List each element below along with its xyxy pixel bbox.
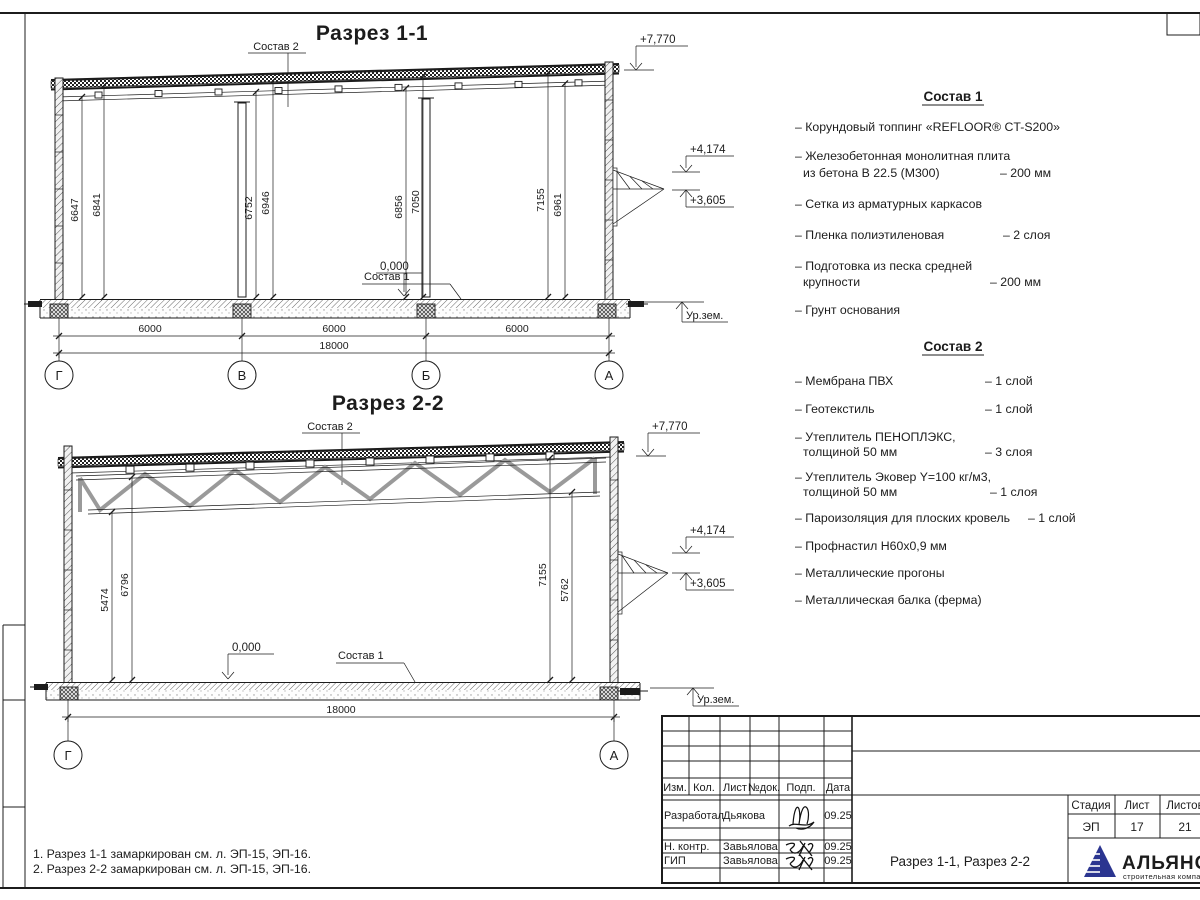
vertical-dims-s2: 5474 6796 7155 5762 xyxy=(99,455,575,683)
svg-text:– 200 мм: – 200 мм xyxy=(1000,166,1051,180)
wall-joints-s1 xyxy=(55,100,613,263)
note-2: 2. Разрез 2-2 замаркирован см. л. ЭП-15,… xyxy=(33,862,311,876)
svg-text:7155: 7155 xyxy=(535,188,547,212)
svg-text:+3,605: +3,605 xyxy=(690,578,726,590)
tb-date-ncontrol: 09.25 xyxy=(824,841,852,853)
section-1-sostav1-label: Состав 1 xyxy=(364,271,410,283)
svg-text:– Металлическая балка (ферма): – Металлическая балка (ферма) xyxy=(795,593,982,607)
wall-joints-s2 xyxy=(64,480,618,650)
svg-text:6961: 6961 xyxy=(552,193,564,217)
drawing-sheet: Разрез 1-1 Состав 2 +7,770 xyxy=(0,0,1200,900)
elevation-zero-s2: 0,000 xyxy=(222,642,274,679)
tb-header-list: Лист xyxy=(723,782,747,794)
composition-2-list: Состав 2 – Мембрана ПВХ – 1 слой – Геоте… xyxy=(795,339,1076,607)
svg-text:– Сетка из арматурных каркасов: – Сетка из арматурных каркасов xyxy=(795,197,982,211)
dim-chain-s1: 6000 6000 6000 18000 xyxy=(53,318,615,358)
ground-level-s1: Ур.зем. xyxy=(640,302,728,322)
elevation-mark-7770-s2: +7,770 xyxy=(636,421,700,456)
svg-text:– Профнастил Н60х0,9 мм: – Профнастил Н60х0,9 мм xyxy=(795,539,947,553)
axis-g-s2: Г xyxy=(64,748,71,763)
tb-stage-label: Стадия xyxy=(1071,800,1110,812)
svg-text:18000: 18000 xyxy=(319,340,348,352)
svg-text:– Металлические прогоны: – Металлические прогоны xyxy=(795,566,945,580)
tb-role-gip: ГИП xyxy=(664,855,686,867)
logo-subtitle: строительная компания xyxy=(1123,872,1200,881)
section-1-1: Разрез 1-1 Состав 2 +7,770 xyxy=(24,22,734,389)
axis-b-s1: Б xyxy=(422,368,431,383)
svg-text:6856: 6856 xyxy=(393,195,405,219)
svg-text:толщиной 50 мм: толщиной 50 мм xyxy=(803,485,897,499)
svg-text:Ур.зем.: Ур.зем. xyxy=(686,310,723,322)
canopy-s2 xyxy=(618,552,668,614)
section-2-sostav1-label: Состав 1 xyxy=(338,650,384,662)
svg-text:+7,770: +7,770 xyxy=(652,421,688,433)
svg-text:– 1 слой: – 1 слой xyxy=(1028,511,1076,525)
tb-header-podp: Подп. xyxy=(786,782,815,794)
tb-sheets-value: 21 xyxy=(1178,820,1192,834)
tb-sheets-label: Листов xyxy=(1166,800,1200,812)
dim-chain-s2: 18000 Г А xyxy=(54,700,628,769)
tb-role-developer: Разработал xyxy=(664,810,724,822)
tb-header-izm: Изм. xyxy=(663,782,687,794)
tb-stage-value: ЭП xyxy=(1082,820,1099,834)
vertical-dims-s1: 6647 6841 6752 6946 6856 7050 7155 6961 xyxy=(69,70,568,300)
axis-a-s2: А xyxy=(610,748,619,763)
section-1-title: Разрез 1-1 xyxy=(316,22,428,45)
svg-text:Ур.зем.: Ур.зем. xyxy=(697,694,734,706)
svg-text:+4,174: +4,174 xyxy=(690,525,726,537)
left-margin-strip xyxy=(3,625,25,888)
svg-text:– 1 слой: – 1 слой xyxy=(985,374,1033,388)
ground-level-s2: Ур.зем. xyxy=(650,688,739,706)
elevation-3605-s2: +3,605 xyxy=(672,573,734,590)
tb-name-ncontrol: Завьялова xyxy=(723,841,779,853)
canopy-s1 xyxy=(613,168,664,226)
tb-role-ncontrol: Н. контр. xyxy=(664,841,709,853)
svg-text:– Железобетонная монолитная пл: – Железобетонная монолитная плита xyxy=(795,149,1010,163)
tb-header-kol: Кол. xyxy=(693,782,715,794)
svg-text:+3,605: +3,605 xyxy=(690,195,726,207)
composition-1-list: Состав 1 – Корундовый топпинг «REFLOOR® … xyxy=(795,89,1060,317)
svg-text:7050: 7050 xyxy=(410,190,422,214)
svg-text:– Грунт основания: – Грунт основания xyxy=(795,303,900,317)
wall-right-s1 xyxy=(605,62,613,300)
svg-text:– Утеплитель ПЕНОПЛЭКС,: – Утеплитель ПЕНОПЛЭКС, xyxy=(795,430,956,444)
svg-text:6796: 6796 xyxy=(119,573,131,597)
axis-g-s1: Г xyxy=(55,368,62,383)
tb-date-gip: 09.25 xyxy=(824,855,852,867)
svg-text:6752: 6752 xyxy=(243,196,255,220)
svg-text:– 2 слоя: – 2 слоя xyxy=(1003,228,1050,242)
svg-text:из бетона В 22.5 (М300): из бетона В 22.5 (М300) xyxy=(803,166,940,180)
tb-sheet-label: Лист xyxy=(1125,800,1151,812)
svg-text:+7,770: +7,770 xyxy=(640,34,676,46)
tb-date-developer: 09.25 xyxy=(824,810,852,822)
svg-text:6000: 6000 xyxy=(505,323,529,335)
svg-text:6841: 6841 xyxy=(91,193,103,217)
elevation-4174-s2: +4,174 xyxy=(672,525,734,553)
section-2-sostav2-label: Состав 2 xyxy=(307,421,353,433)
svg-text:толщиной 50 мм: толщиной 50 мм xyxy=(803,445,897,459)
floor-s2 xyxy=(30,683,648,700)
corner-stamp-box xyxy=(1167,13,1200,35)
tb-header-data: Дата xyxy=(826,782,851,794)
svg-text:0,000: 0,000 xyxy=(232,642,261,654)
svg-text:+4,174: +4,174 xyxy=(690,144,726,156)
drawing-canvas: Разрез 1-1 Состав 2 +7,770 xyxy=(0,0,1200,900)
tb-name-gip: Завьялова xyxy=(723,855,779,867)
title-block: Изм. Кол. Лист №док. Подп. Дата Разработ… xyxy=(662,716,1200,883)
svg-text:крупности: крупности xyxy=(803,275,860,289)
svg-text:5762: 5762 xyxy=(559,578,571,602)
svg-text:6946: 6946 xyxy=(260,191,272,215)
axis-a-s1: А xyxy=(605,368,614,383)
svg-text:– 1 слоя: – 1 слоя xyxy=(990,485,1037,499)
composition-1-title: Состав 1 xyxy=(923,89,982,104)
svg-text:18000: 18000 xyxy=(326,704,355,716)
svg-text:– Корундовый топпинг «REFLOOR®: – Корундовый топпинг «REFLOOR® CT-S200» xyxy=(795,120,1060,134)
axis-v-s1: В xyxy=(238,368,247,383)
wall-left-s2 xyxy=(64,446,72,683)
note-1: 1. Разрез 1-1 замаркирован см. л. ЭП-15,… xyxy=(33,847,311,861)
tb-header-ndok: №док. xyxy=(748,782,780,794)
notes: 1. Разрез 1-1 замаркирован см. л. ЭП-15,… xyxy=(33,847,311,876)
svg-text:– Пленка полиэтиленовая: – Пленка полиэтиленовая xyxy=(795,228,944,242)
section-1-sostav2-label: Состав 2 xyxy=(253,41,299,53)
svg-text:5474: 5474 xyxy=(99,588,111,612)
svg-text:7155: 7155 xyxy=(537,563,549,587)
svg-text:– Пароизоляция для плоских кро: – Пароизоляция для плоских кровель xyxy=(795,511,1010,525)
svg-text:– 200 мм: – 200 мм xyxy=(990,275,1041,289)
elevation-4174-s1: +4,174 xyxy=(672,144,734,172)
svg-text:– Утеплитель Эковер Y=100 кг/м: – Утеплитель Эковер Y=100 кг/м3, xyxy=(795,470,991,484)
elevation-mark-7770-s1: +7,770 xyxy=(624,34,688,70)
composition-2-title: Состав 2 xyxy=(923,339,982,354)
svg-text:6000: 6000 xyxy=(138,323,162,335)
tb-name-developer: Дьякова xyxy=(723,810,766,822)
logo-text: АЛЬЯНС xyxy=(1122,853,1200,874)
svg-text:– 1 слой: – 1 слой xyxy=(985,402,1033,416)
elevation-3605-s1: +3,605 xyxy=(672,190,734,207)
svg-text:– Подготовка из песка средней: – Подготовка из песка средней xyxy=(795,259,972,273)
svg-text:6647: 6647 xyxy=(69,198,81,222)
section-2-2: Разрез 2-2 Состав 2 +7,770 xyxy=(30,392,739,769)
svg-text:– 3 слоя: – 3 слоя xyxy=(985,445,1032,459)
svg-text:– Геотекстиль: – Геотекстиль xyxy=(795,402,875,416)
svg-text:6000: 6000 xyxy=(322,323,346,335)
tb-sheet-value: 17 xyxy=(1130,820,1144,834)
floor-s1 xyxy=(24,300,648,318)
svg-text:– Мембрана ПВХ: – Мембрана ПВХ xyxy=(795,374,893,388)
section-2-title: Разрез 2-2 xyxy=(332,392,444,415)
tb-doc-title: Разрез 1-1, Разрез 2-2 xyxy=(890,854,1030,869)
